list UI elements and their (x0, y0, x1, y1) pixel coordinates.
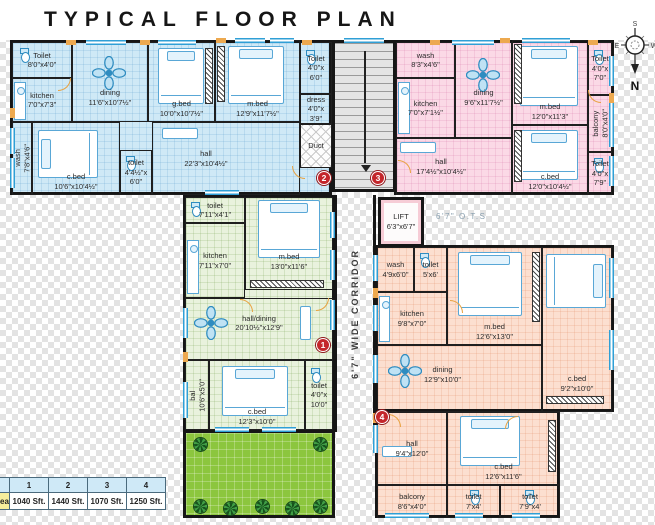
room-dims: 4'0"x 7'9" (589, 169, 611, 188)
room-core-toilet: Toilet4'0"x 6'0" (300, 42, 332, 94)
room-dims: 7'8"x4'6" (22, 144, 31, 173)
window (344, 38, 384, 43)
compass-east-label: E (615, 43, 620, 50)
room-flat4-wash: wash4'9x6'0" (377, 247, 414, 292)
room-dims: 11'6"x10'7½" (89, 98, 132, 107)
window (385, 513, 429, 518)
toilet-icon (311, 368, 320, 382)
floor-plan-canvas: 6'7" WIDE CORRIDOR LIFT6'3"x6'7" 6'7" O.… (0, 0, 655, 525)
room-flat4-toilet1: toilet5'x6' (414, 247, 447, 292)
room-dims: 7'0"x7'1½" (408, 108, 443, 117)
room-dims: 4'0"x 3'9" (301, 104, 331, 123)
door-mark (302, 40, 312, 45)
room-dims: 12'3"x10'0" (239, 417, 276, 426)
room-dims: 12'9"x11'7½" (236, 109, 279, 118)
door-mark (373, 288, 378, 298)
flat-area-value: 1440 Sft. (49, 493, 88, 510)
window (609, 103, 614, 147)
window (183, 382, 188, 418)
room-name: balcony (591, 109, 600, 138)
room-name: toilet (121, 158, 151, 167)
room-name: hall/dining (235, 314, 282, 323)
lift-label: LIFT (387, 212, 416, 222)
room-name: Duct (308, 141, 323, 150)
room-dims: 8'3"x4'6" (411, 60, 440, 69)
room-dims: 17'4½"x10'4½" (416, 167, 465, 176)
tree-icon (256, 500, 269, 513)
window (609, 330, 614, 370)
wardrobe-icon (532, 252, 540, 322)
door-mark (500, 38, 510, 43)
room-name: toilet (519, 492, 541, 501)
window (205, 190, 239, 195)
room-dims: 20'10½"x12'9" (235, 323, 282, 332)
wardrobe-icon (205, 48, 213, 104)
room-name: Toilet (589, 54, 611, 63)
room-dims: 4'4½"x 6'0" (121, 168, 151, 187)
window (270, 38, 294, 43)
flat-area-table: 1 2 3 4 ea 1040 Sft. 1440 Sft. 1070 Sft.… (0, 477, 166, 510)
tree-icon (224, 502, 237, 515)
room-name: m.bed (271, 252, 307, 261)
window (330, 212, 335, 238)
tree-icon (286, 502, 299, 515)
window (522, 38, 570, 43)
wardrobe-icon (546, 396, 604, 404)
door-mark (216, 38, 226, 43)
compass-west-label: W (651, 43, 655, 50)
door-mark (430, 40, 440, 45)
room-dims: 12'0"x11'3" (532, 112, 568, 121)
room-name: Toilet (301, 54, 331, 63)
window (86, 40, 126, 45)
room-name: toilet (423, 260, 439, 269)
flat-marker-4: 4 (375, 410, 389, 424)
flat-number-header: 4 (127, 478, 166, 493)
window (235, 38, 265, 43)
room-name: dining (89, 88, 132, 97)
window (373, 425, 378, 453)
room-name: Toilet (589, 159, 611, 168)
ceiling-fan-icon (466, 58, 500, 92)
room-name: c.bed (561, 374, 594, 383)
window (215, 427, 249, 432)
room-dims: 7'11"x7'0" (199, 261, 231, 270)
room-name: toilet (466, 492, 482, 501)
window (452, 40, 494, 45)
table-area-row: ea 1040 Sft. 1440 Sft. 1070 Sft. 1250 Sf… (0, 493, 166, 510)
room-dims: 10'6"x10'4½" (54, 182, 97, 191)
tree-icon (194, 438, 207, 451)
window (609, 258, 614, 298)
room-name: m.bed (236, 99, 279, 108)
window (609, 156, 614, 186)
room-dims: 12'9"x10'0" (424, 375, 461, 384)
room-dims: 4'9x6'0" (383, 270, 409, 279)
room-flat3-bal: bal10'6"x5'0" (185, 360, 209, 430)
door-mark (588, 40, 598, 45)
flat-area-value: 1250 Sft. (127, 493, 166, 510)
window (373, 305, 378, 331)
room-dims: 10'6"x5'0" (197, 379, 206, 412)
compass-rose: S E W N (613, 18, 655, 96)
door-mark (66, 40, 76, 45)
room-dims: 13'0"x11'6" (271, 262, 307, 271)
wardrobe-icon (548, 420, 556, 472)
room-core-dress: dress4'0"x 3'9" (300, 94, 332, 124)
flat-area-value: 1040 Sft. (10, 493, 49, 510)
window (512, 513, 540, 518)
room-dims: 9'4"x12'0" (396, 449, 429, 458)
ceiling-fan-icon (92, 56, 126, 90)
door-mark (10, 108, 15, 118)
ceiling-fan-icon (194, 306, 228, 340)
flat-number-header: 1 (10, 478, 49, 493)
window (10, 158, 15, 188)
compass-north-label: N (631, 79, 640, 93)
room-flat1-dining: dining9'6"x11'7½" (455, 42, 512, 138)
bed-icon (228, 46, 284, 104)
room-name: toilet (306, 381, 332, 390)
room-name: c.bed (239, 407, 276, 416)
tree-icon (194, 500, 207, 513)
window (10, 128, 15, 154)
bed-icon (258, 200, 320, 258)
window (373, 355, 378, 383)
bed-icon (520, 46, 578, 106)
table-header-row: 1 2 3 4 (0, 478, 166, 493)
window (183, 308, 188, 338)
room-dims: 7'x4' (466, 502, 482, 511)
ceiling-fan-icon (388, 354, 422, 388)
room-dims: 4'0"x 7'0" (589, 64, 611, 83)
room-name: kitchen (199, 251, 231, 260)
window (330, 300, 335, 330)
room-dims: 8'0"x4'0" (28, 60, 57, 69)
flat-number-header: 2 (49, 478, 88, 493)
kitchen-counter-icon (187, 240, 199, 294)
table-corner-cell (0, 478, 10, 493)
ots-label: 6'7" O.T.S (436, 212, 487, 221)
room-name: balcony (398, 492, 427, 501)
door-mark (140, 40, 150, 45)
room-name: c.bed (485, 462, 521, 471)
room-name: dining (424, 365, 461, 374)
window (330, 250, 335, 280)
room-name: dining (464, 88, 503, 97)
room-dims: 8'0"x4'0" (600, 109, 609, 138)
room-name: Toilet (28, 51, 57, 60)
bed-icon (458, 252, 522, 316)
room-dims: 22'3"x10'4½" (184, 159, 227, 168)
flat-marker-3: 3 (371, 171, 385, 185)
room-name: hall (184, 149, 227, 158)
window (455, 513, 483, 518)
kitchen-counter-icon (14, 82, 26, 120)
sofa-icon (300, 306, 311, 340)
compass-south-label: S (633, 21, 638, 28)
bed-icon (158, 48, 204, 104)
room-dims: 12'0"x10'4½" (528, 182, 571, 191)
window (262, 427, 296, 432)
room-flat2-wash: wash7'8"x4'6" (12, 122, 32, 195)
sofa-icon (162, 128, 198, 139)
room-core-duct: Duct (300, 124, 332, 168)
room-dims: 12'6"x11'6" (485, 472, 521, 481)
room-name: wash (411, 51, 440, 60)
room-flat1-wash: wash8'3"x4'6" (396, 42, 455, 78)
room-name: wash (383, 260, 409, 269)
corridor: 6'7" WIDE CORRIDOR (334, 195, 376, 432)
area-row-label: ea (0, 493, 10, 510)
flat-marker-2: 2 (317, 171, 331, 185)
room-dims: 12'6"x13'0" (476, 332, 513, 341)
flat-area-value: 1070 Sft. (88, 493, 127, 510)
room-name: m.bed (532, 102, 568, 111)
staircase (332, 40, 396, 192)
page-title: TYPICAL FLOOR PLAN (44, 8, 402, 32)
lift-dims: 6'3"x6'7" (387, 222, 416, 232)
room-name: m.bed (476, 322, 513, 331)
room-dims: 4'0"x 6'0" (301, 63, 331, 82)
sofa-icon (400, 142, 436, 153)
room-name: kitchen (408, 99, 443, 108)
tree-icon (314, 438, 327, 451)
room-name: dress (301, 95, 331, 104)
room-dims: 7'0"x7'3" (28, 100, 57, 109)
window (158, 40, 196, 45)
kitchen-counter-icon (379, 296, 390, 342)
bed-icon (38, 130, 98, 178)
bed-icon (546, 254, 606, 308)
room-dims: 10'0"x10'7½" (160, 109, 203, 118)
room-dims: 8'6"x4'0" (398, 502, 427, 511)
tree-icon (314, 500, 327, 513)
room-dims: 5'x6' (423, 270, 439, 279)
room-name: g.bed (160, 99, 203, 108)
window (373, 255, 378, 281)
room-name: bal (188, 379, 197, 412)
room-dims: 7'9"x4' (519, 502, 541, 511)
room-flat2-toilet2: toilet4'4½"x 6'0" (120, 150, 152, 195)
room-name: hall (416, 157, 465, 166)
room-name: kitchen (398, 309, 427, 318)
flat-marker-1: 1 (316, 338, 330, 352)
room-dims: 9'2"x10'0" (561, 384, 594, 393)
corridor-label: 6'7" WIDE CORRIDOR (350, 249, 360, 379)
room-name: hall (396, 439, 429, 448)
wardrobe-icon (217, 46, 225, 102)
room-dims: 9'6"x11'7½" (464, 98, 503, 107)
room-name: c.bed (528, 172, 571, 181)
wardrobe-icon (250, 280, 324, 288)
lift: LIFT6'3"x6'7" (378, 197, 424, 247)
room-name: toilet (199, 201, 231, 210)
room-name: kitchen (28, 91, 57, 100)
flat-number-header: 3 (88, 478, 127, 493)
wardrobe-icon (514, 130, 522, 182)
room-dims: 7'11"x4'1" (199, 210, 231, 219)
wardrobe-icon (514, 44, 522, 104)
room-dims: 4'0"x 10'0" (306, 390, 332, 409)
room-dims: 9'8"x7'0" (398, 319, 427, 328)
room-name: c.bed (54, 172, 97, 181)
door-mark (183, 352, 188, 362)
